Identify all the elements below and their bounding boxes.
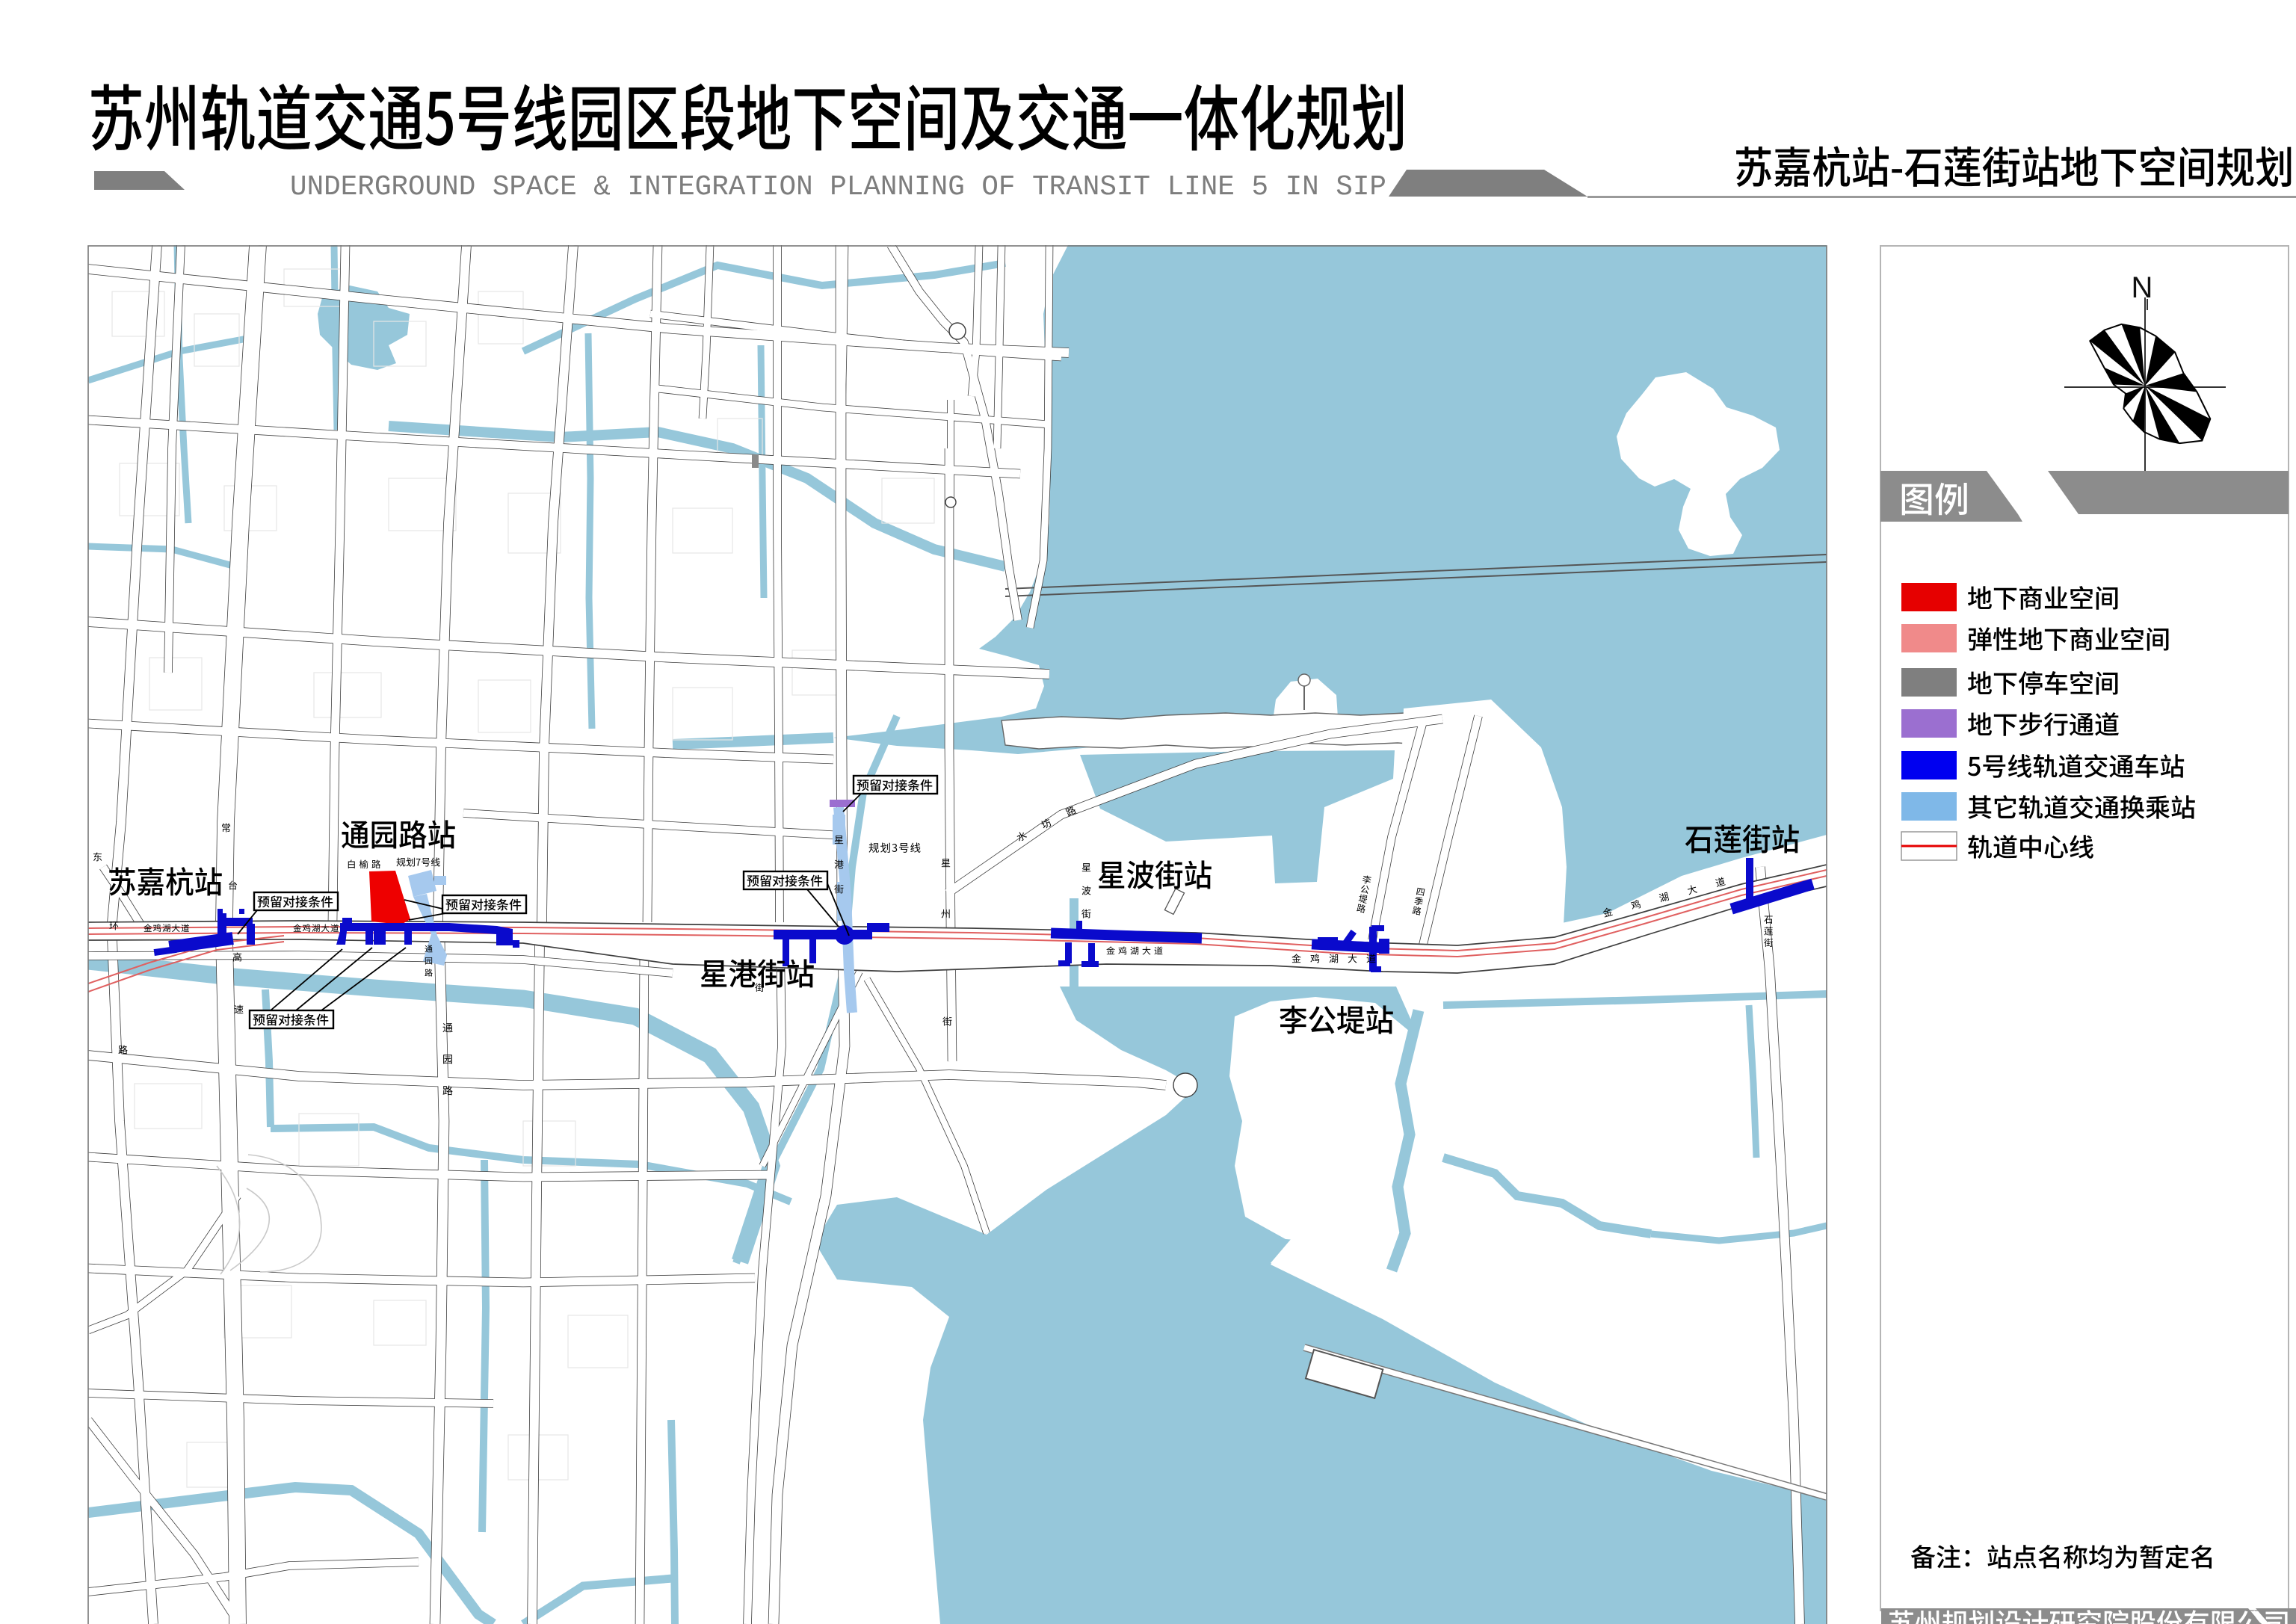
svg-text:UNDERGROUND SPACE & INTEGRATIO: UNDERGROUND SPACE & INTEGRATION PLANNING… — [290, 171, 1386, 203]
svg-text:N: N — [2132, 271, 2153, 304]
